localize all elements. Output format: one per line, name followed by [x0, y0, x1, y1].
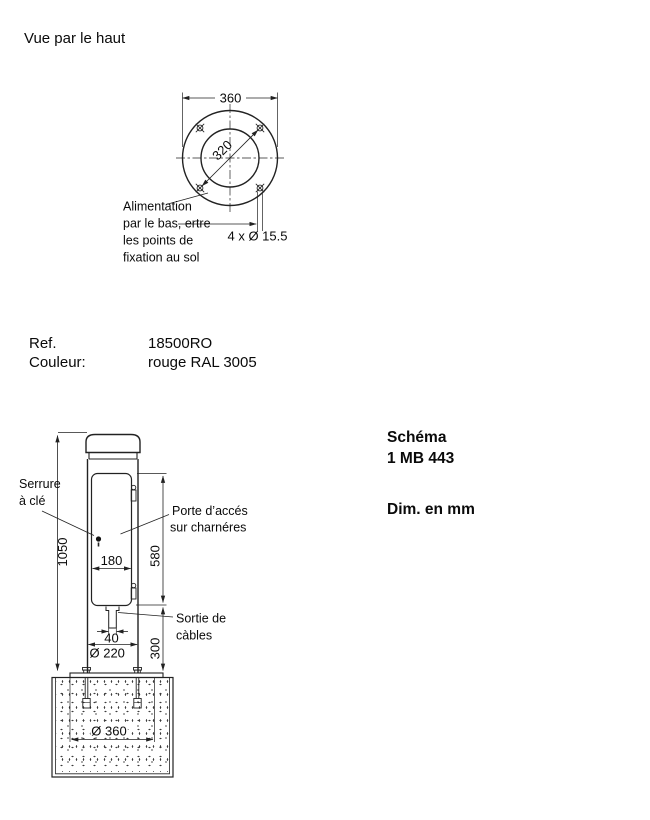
- reference-info: Ref. 18500RO Couleur: rouge RAL 3005: [29, 334, 257, 372]
- color-value: rouge RAL 3005: [148, 353, 257, 372]
- fixation-hole: [196, 124, 204, 132]
- schema-number: 1 MB 443: [387, 449, 454, 470]
- dimension-180: 180: [93, 553, 131, 569]
- dimension-360-base: Ø 360: [70, 678, 155, 743]
- anchor-bolts: [83, 678, 141, 709]
- dim-label-1050: 1050: [55, 538, 70, 567]
- door-label-line-1: Porte d’accés: [172, 504, 248, 518]
- feed-note-line-2: par le bas, ertre: [123, 217, 211, 231]
- dim-label-180: 180: [101, 553, 123, 568]
- feed-note-line-4: fixation au sol: [123, 251, 199, 265]
- ref-label: Ref.: [29, 334, 148, 353]
- key-lock: [96, 536, 101, 546]
- cable-label-leader: [118, 613, 173, 618]
- datasheet-page: Vue par le haut: [0, 0, 650, 820]
- lock-label-line-2: à clé: [19, 494, 45, 508]
- lock-label: Serrure à clé: [19, 477, 94, 536]
- base-flange: [70, 668, 163, 678]
- cable-label: Sortie de càbles: [118, 612, 226, 643]
- dim-label-580: 580: [148, 545, 163, 567]
- schema-title: Schéma: [387, 428, 454, 449]
- top-view-drawing: 360 320 4 x Ø 15.5 Alimentation par le b…: [115, 55, 355, 270]
- feed-note: Alimentation par le bas, ertre les point…: [123, 193, 211, 265]
- dimension-40: 40: [97, 629, 128, 646]
- dim-label-holes: 4 x Ø 15.5: [228, 229, 288, 244]
- dim-label-220: Ø 220: [90, 646, 125, 661]
- dim-label-360-base: Ø 360: [91, 724, 126, 739]
- lock-label-leader: [42, 511, 94, 536]
- dim-label-320: 320: [209, 137, 235, 163]
- feed-note-line-3: les points de: [123, 234, 193, 248]
- door-label-line-2: sur charnéres: [170, 521, 246, 535]
- color-label: Couleur:: [29, 353, 148, 372]
- door-label-leader: [121, 515, 170, 535]
- dimension-220: Ø 220: [88, 645, 137, 661]
- cable-label-line-1: Sortie de: [176, 612, 226, 626]
- side-view-drawing: 1050 580 300 180 40: [12, 425, 262, 800]
- dimension-580: 580: [136, 474, 167, 606]
- schema-info: Schéma 1 MB 443: [387, 428, 454, 469]
- door-label: Porte d’accés sur charnéres: [121, 504, 248, 535]
- dim-label-300: 300: [148, 638, 163, 660]
- feed-note-line-1: Alimentation: [123, 200, 192, 214]
- ref-value: 18500RO: [148, 334, 257, 353]
- dim-label-40: 40: [104, 631, 118, 646]
- lock-label-line-1: Serrure: [19, 477, 61, 491]
- dimension-1050: 1050: [55, 433, 87, 671]
- dimension-300: 300: [148, 608, 164, 671]
- units-note: Dim. en mm: [387, 500, 475, 521]
- bollard-cap: [86, 435, 140, 460]
- cable-label-line-2: càbles: [176, 629, 212, 643]
- fixation-hole: [256, 184, 264, 192]
- page-title: Vue par le haut: [24, 29, 125, 48]
- cable-outlet: [106, 607, 119, 629]
- dim-label-360: 360: [220, 91, 242, 106]
